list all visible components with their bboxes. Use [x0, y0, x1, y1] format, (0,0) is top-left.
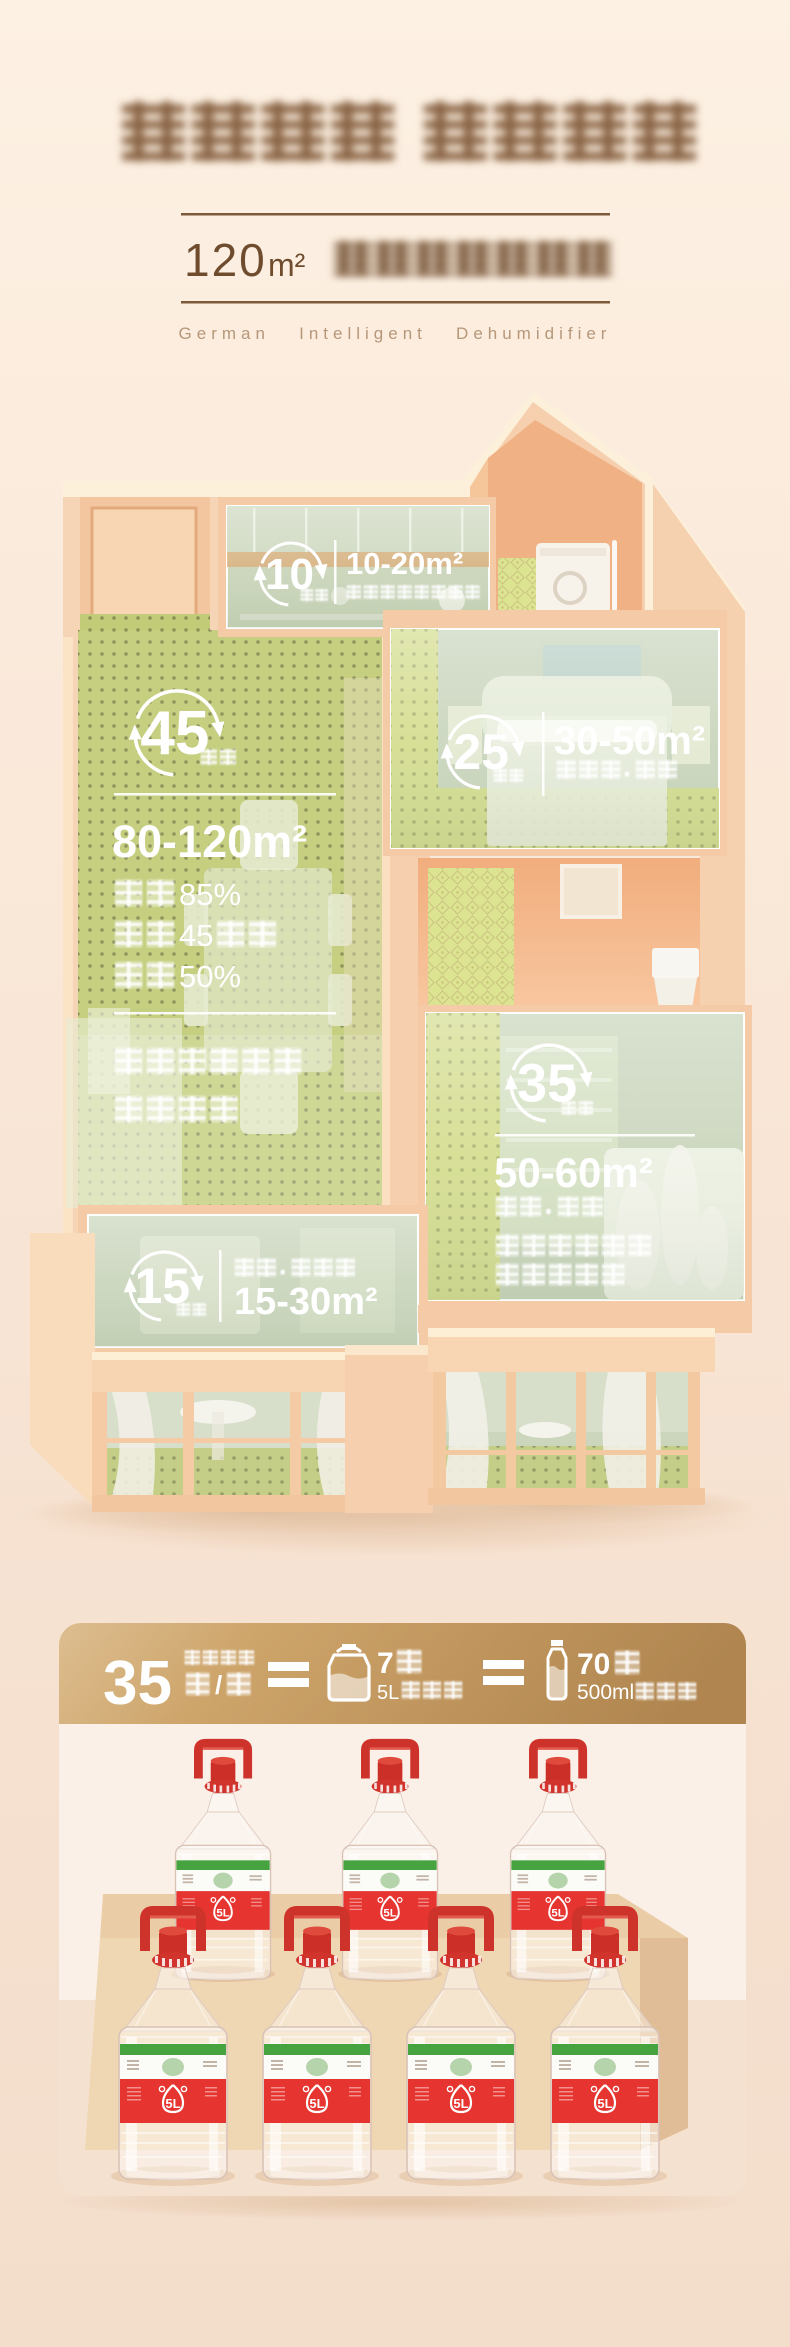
- svg-text:15-30m²: 15-30m²: [234, 1281, 378, 1323]
- svg-text:80-120m²: 80-120m²: [112, 816, 307, 867]
- svg-text:30-50m²: 30-50m²: [554, 719, 705, 763]
- svg-text:10-20m²: 10-20m²: [346, 546, 463, 581]
- svg-text:120: 120: [184, 234, 267, 286]
- svg-text:85%: 85%: [179, 877, 241, 912]
- svg-text:German Intelligent Dehumid: German Intelligent Dehumidifier: [179, 324, 612, 343]
- svg-text:70: 70: [577, 1648, 610, 1681]
- svg-text:m²: m²: [268, 247, 306, 283]
- svg-text:50%: 50%: [179, 959, 241, 994]
- svg-text:7: 7: [377, 1647, 394, 1680]
- svg-text:5L: 5L: [377, 1682, 399, 1704]
- svg-text:/: /: [215, 1670, 222, 1700]
- svg-text:500ml: 500ml: [577, 1681, 634, 1704]
- svg-text:45: 45: [140, 699, 209, 768]
- svg-text:45: 45: [179, 918, 213, 953]
- svg-text:50-60m²: 50-60m²: [494, 1149, 653, 1196]
- svg-text:35: 35: [103, 1649, 172, 1718]
